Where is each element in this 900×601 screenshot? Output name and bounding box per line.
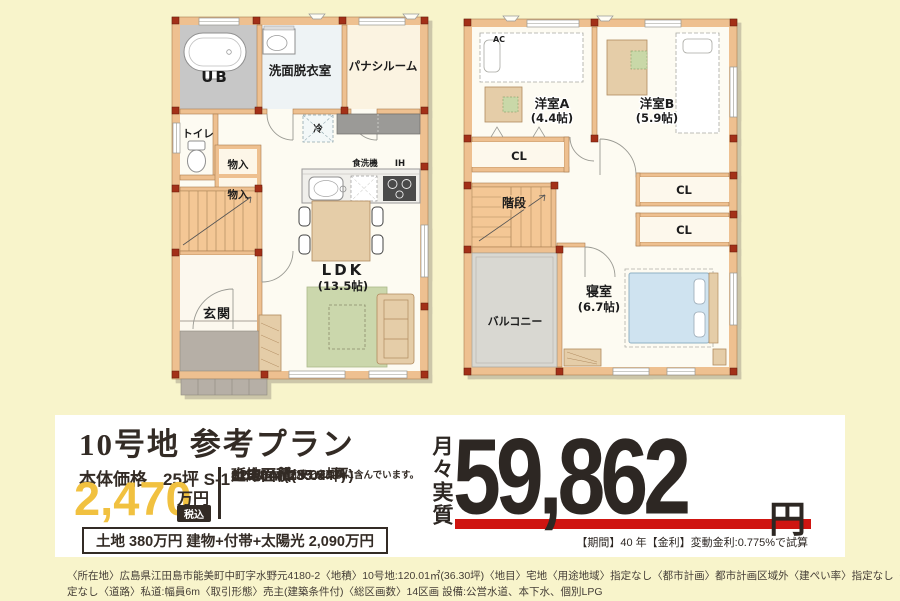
label-ac: AC: [493, 35, 505, 44]
label-balcony: バルコニー: [488, 315, 543, 328]
label-stairs: 階段: [502, 195, 527, 210]
footnote: 〈所在地〉広島県江田島市能美町中町字水野元4180-2〈地積〉10号地:120.…: [67, 568, 877, 601]
flyer-page: { "page": { "background": "#f8f4cb", "ac…: [0, 0, 900, 600]
label-dishwasher: 食洗機: [352, 158, 378, 169]
footnote-line-1: 〈所在地〉広島県江田島市能美町中町字水野元4180-2〈地積〉10号地:120.…: [67, 568, 877, 584]
balcony: [472, 247, 562, 367]
toilet-bowl: [188, 150, 206, 172]
label-bedroom-size: (6.7帖): [578, 300, 620, 314]
living-rug: [307, 287, 387, 367]
area-info: 土地面積 118.84㎡(35.94坪) 延床面積 82.80㎡(25.04坪)…: [231, 465, 419, 482]
room-ub: [180, 25, 257, 109]
room-entrance: [180, 251, 262, 335]
stairs-1f: [180, 187, 262, 251]
label-ldk-size: (13.5帖): [318, 279, 368, 293]
label-fridge: 冷: [313, 123, 323, 135]
vanity-sink: [263, 26, 295, 54]
shoe-cabinet: [259, 315, 281, 371]
price-value: 2,470: [74, 475, 192, 522]
floor-plan-2f: AC 洋室A (4.4帖) 洋室B (5.9帖) CL 階段 CL CL 寝室 …: [463, 15, 743, 387]
bathtub: [184, 33, 246, 71]
stairs-2f: [472, 183, 556, 251]
label-toilet: トイレ: [182, 128, 214, 140]
ih-cooktop: [383, 176, 416, 201]
label-closet-a: CL: [511, 149, 527, 163]
footnote-line-2: 定なし〈道路〉私道:幅員6m〈取引形態〉売主(建築条件付)〈総区画数〉14区画 …: [67, 584, 877, 600]
tax-badge: 税込: [177, 505, 211, 522]
label-storage-a: 物入: [228, 158, 249, 171]
loan-note: 【期間】40 年【金利】変動金利:0.775%で試算: [455, 534, 808, 550]
label-pana-room: パナシルーム: [349, 59, 418, 73]
floor-plan-1f: UB 洗面脱衣室 パナシルーム トイレ 物入 物入 冷 食洗機 IH LDK (…: [171, 13, 433, 405]
label-ub: UB: [201, 68, 229, 86]
label-storage-b: 物入: [228, 188, 249, 201]
price-breakdown-box: 土地 380万円 建物+付帯+太陽光 2,090万円: [82, 527, 388, 554]
label-room-b: 洋室B: [640, 96, 675, 111]
porch: [180, 331, 267, 395]
plan-title: 10号地 参考プラン: [79, 419, 355, 464]
monthly-label: 月々実質: [426, 435, 456, 531]
label-room-b-size: (5.9帖): [636, 111, 678, 125]
toilet-tank: [188, 141, 205, 150]
label-ih: IH: [395, 159, 405, 169]
side-table: [713, 349, 726, 365]
label-closet-b: CL: [676, 183, 692, 197]
label-ldk: LDK: [322, 261, 365, 279]
dresser: [564, 349, 601, 366]
dining-set: [299, 201, 383, 261]
sofa: [377, 294, 414, 364]
label-room-a: 洋室A: [535, 96, 570, 111]
monthly-value: 59,862: [453, 427, 686, 529]
kitchen-counter: [302, 169, 420, 203]
label-entrance: 玄関: [203, 306, 231, 322]
label-room-a-size: (4.4帖): [531, 111, 573, 125]
floor-area-value: 82.80㎡(25.04坪): [231, 465, 346, 486]
label-closet-c: CL: [676, 223, 692, 237]
divider: [218, 467, 221, 519]
label-washroom: 洗面脱衣室: [269, 63, 332, 78]
cupboard: [337, 114, 420, 134]
price-panel: 10号地 参考プラン 本体価格 25坪 S-1 2,470 万円 税込 土地面積…: [55, 415, 845, 557]
label-bedroom: 寝室: [586, 284, 612, 300]
